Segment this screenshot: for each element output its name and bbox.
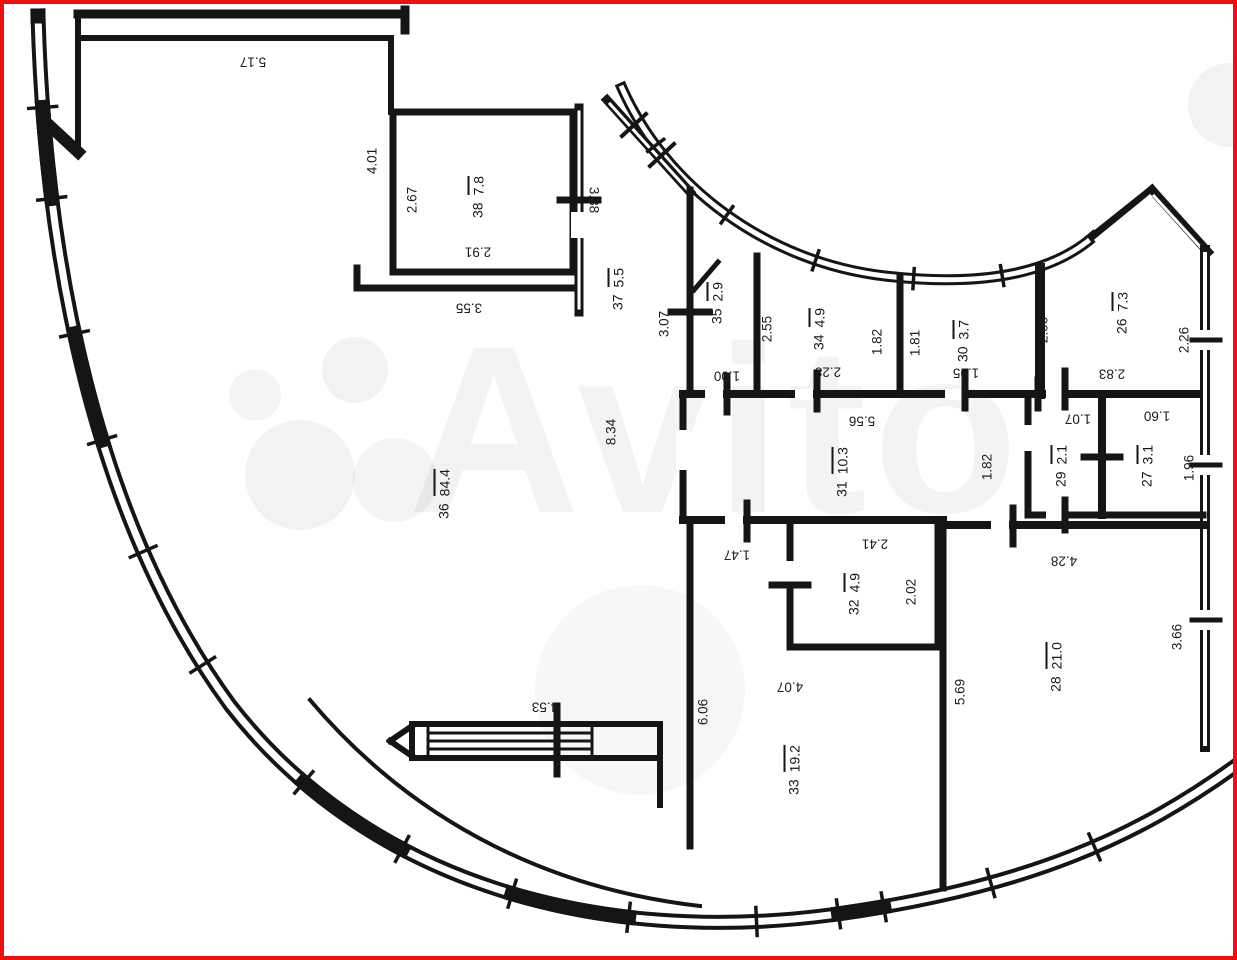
- dimension-label: 1.00: [714, 369, 740, 384]
- room-label: 2821.0: [1046, 642, 1065, 692]
- dimension-label: 2.91: [465, 245, 491, 260]
- dimension-label: 2.41: [862, 537, 888, 552]
- dimension-label: 5.17: [240, 55, 266, 70]
- room-label: 344.9: [809, 308, 828, 350]
- room-number: 35: [708, 308, 724, 324]
- stair-diagonal: [390, 741, 412, 756]
- dimension-label: 1.96: [1182, 455, 1197, 481]
- room-number: 34: [810, 334, 826, 350]
- dimension-label: 3.55: [456, 301, 482, 316]
- room-area: 3.1: [1137, 445, 1156, 464]
- arc-panel-tick: [1001, 266, 1004, 286]
- room-number: 27: [1138, 471, 1154, 487]
- room-area: 7.3: [1112, 292, 1131, 311]
- room-area: 3.7: [953, 320, 972, 339]
- room-number: 38: [469, 202, 485, 218]
- dimension-label: 4.53: [532, 700, 558, 715]
- dimension-label: 1.81: [908, 330, 923, 356]
- arc-panel-tick: [913, 269, 914, 289]
- room-label: 352.9: [707, 282, 726, 324]
- room-area: 84.4: [434, 469, 453, 496]
- door-gap: [705, 389, 723, 400]
- room-label: 303.7: [953, 320, 972, 362]
- arc-panel-tick: [881, 893, 886, 921]
- room-area-fraction: 19.2: [784, 745, 803, 772]
- room-label: 375.5: [608, 268, 627, 310]
- arc-panel-tick: [29, 106, 57, 108]
- room-area-fraction: 2.9: [707, 282, 726, 301]
- chamfer-wall-core: [1154, 196, 1205, 252]
- room-number: 26: [1113, 318, 1129, 334]
- room-area-fraction: 4.9: [844, 573, 863, 592]
- dimension-label: 1.60: [1144, 409, 1170, 424]
- room-area-fraction: 4.9: [809, 308, 828, 327]
- arc-panel-tick: [38, 197, 66, 200]
- room-label: 273.1: [1137, 445, 1156, 487]
- door-gap: [945, 389, 963, 400]
- dimension-label: 6.06: [696, 699, 711, 725]
- room-area-fraction: 10.3: [832, 447, 851, 474]
- arc-panel-tick: [627, 903, 630, 931]
- chamfer-wall: [1093, 190, 1152, 237]
- room-number: 32: [845, 599, 861, 615]
- room-area: 5.5: [608, 268, 627, 287]
- balcony-rail-line: [310, 700, 700, 906]
- door-gap: [795, 389, 813, 400]
- dimension-label: 3.66: [1170, 624, 1185, 650]
- dimension-label: 4.01: [365, 148, 380, 174]
- room-number: 33: [785, 779, 801, 795]
- dimension-label: 2.55: [760, 316, 775, 342]
- room-area: 10.3: [832, 447, 851, 474]
- dimension-label: 1.82: [870, 329, 885, 355]
- room-area: 21.0: [1046, 642, 1065, 669]
- door-gap: [571, 212, 587, 238]
- dimension-label: 1.07: [1065, 412, 1091, 427]
- dimension-label: 2.26: [1177, 327, 1192, 353]
- room-label: 324.9: [844, 573, 863, 615]
- diagonal-wall-core: [610, 104, 687, 189]
- dimension-label: 3.88: [587, 187, 602, 213]
- room-area: 7.8: [468, 176, 487, 195]
- door-gap: [1046, 389, 1064, 400]
- room-label: 387.8: [468, 176, 487, 218]
- door-gap: [1021, 425, 1035, 451]
- room-number: 29: [1052, 471, 1068, 487]
- room-area: 2.9: [707, 282, 726, 301]
- dimension-label: 5.69: [953, 679, 968, 705]
- wall-panel-filled: [50, 126, 78, 152]
- room-area: 19.2: [784, 745, 803, 772]
- room-area: 4.9: [844, 573, 863, 592]
- dimension-label: 2.06: [1036, 317, 1051, 343]
- dimension-label: 8.34: [604, 419, 619, 445]
- arc-panel-tick: [756, 908, 757, 936]
- dimension-label: 3.07: [657, 311, 672, 337]
- dimension-label: 2.67: [405, 187, 420, 213]
- room-area-fraction: 21.0: [1046, 642, 1065, 669]
- dimension-label: 2.83: [1099, 367, 1125, 382]
- door-gap: [725, 515, 743, 526]
- door-gap: [783, 561, 797, 583]
- dimension-label: 4.07: [777, 680, 803, 695]
- room-number: 37: [609, 294, 625, 310]
- floorplan-image: Avito: [0, 0, 1237, 960]
- arc-panel-tick: [837, 900, 841, 928]
- room-area-fraction: 3.7: [953, 320, 972, 339]
- room-area: 4.9: [809, 308, 828, 327]
- chamfer-wall: [1152, 190, 1208, 252]
- dimension-label: 1.47: [724, 548, 750, 563]
- door-gap: [676, 430, 690, 470]
- dimension-label: 2.02: [904, 579, 919, 605]
- dimension-label: 1.95: [953, 366, 979, 381]
- room-area-fraction: 84.4: [434, 469, 453, 496]
- room-label: 292.1: [1051, 445, 1070, 487]
- door-gap: [991, 520, 1009, 531]
- chamfer-wall-core: [1096, 196, 1150, 240]
- stair-diagonal: [390, 726, 412, 741]
- room-label: 3684.4: [434, 469, 453, 519]
- room-label: 267.3: [1112, 292, 1131, 334]
- dimension-label: 1.82: [980, 454, 995, 480]
- room-area: 2.1: [1051, 445, 1070, 464]
- dimension-label: 5.56: [849, 414, 875, 429]
- room-label: 3319.2: [784, 745, 803, 795]
- room-area-fraction: 2.1: [1051, 445, 1070, 464]
- room-number: 31: [833, 481, 849, 497]
- room-number: 36: [435, 503, 451, 519]
- room-area-fraction: 7.8: [468, 176, 487, 195]
- room-label: 3110.3: [832, 447, 851, 497]
- room-area-fraction: 3.1: [1137, 445, 1156, 464]
- room-number: 30: [954, 346, 970, 362]
- room-number: 28: [1047, 676, 1063, 692]
- room-area-fraction: 7.3: [1112, 292, 1131, 311]
- room-area-fraction: 5.5: [608, 268, 627, 287]
- door-gap: [1046, 510, 1064, 520]
- dimension-label: 4.28: [1051, 554, 1077, 569]
- dimension-label: 2.28: [815, 365, 841, 380]
